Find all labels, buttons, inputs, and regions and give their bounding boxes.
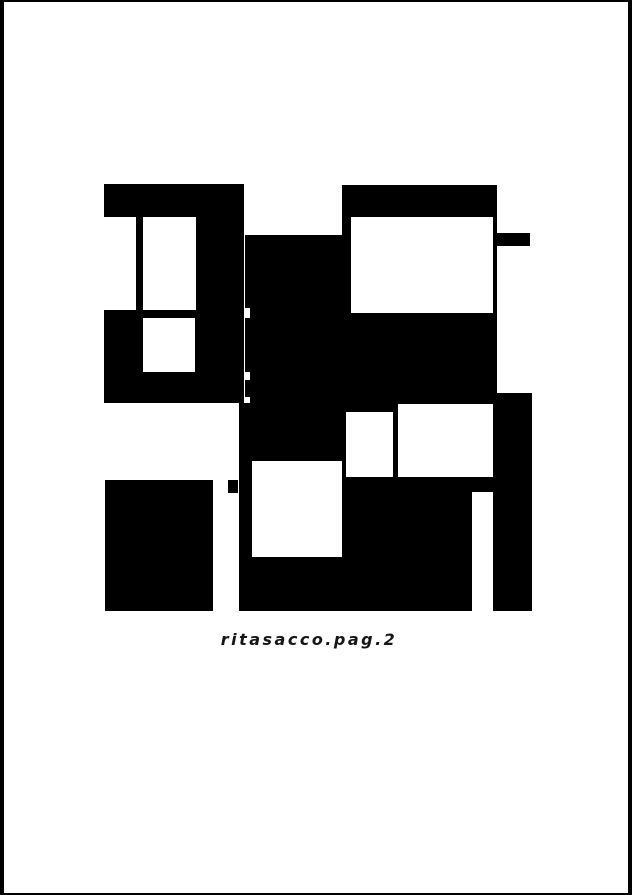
top-left-right-column — [196, 217, 244, 310]
right-bridge — [472, 477, 493, 492]
right-column — [493, 393, 532, 611]
top-right-window — [351, 217, 493, 313]
left-inner-line — [136, 217, 143, 310]
central-square-window — [252, 461, 342, 557]
bottom-left-block — [105, 480, 213, 611]
small-center-window — [346, 412, 393, 477]
abstract-composition: ritasacco.pag.2 — [0, 0, 632, 895]
under-bar-opening — [104, 217, 136, 310]
central-block — [250, 235, 343, 403]
mid-left-window — [143, 318, 195, 372]
right-side-tab — [497, 233, 530, 246]
top-left-bar — [104, 184, 244, 217]
left-notch-tab — [228, 480, 238, 493]
top-left-window — [143, 217, 196, 310]
caption-text: ritasacco.pag.2 — [221, 629, 398, 651]
center-right-window — [398, 404, 493, 477]
art-print-page: ritasacco.pag.2 — [0, 0, 632, 895]
